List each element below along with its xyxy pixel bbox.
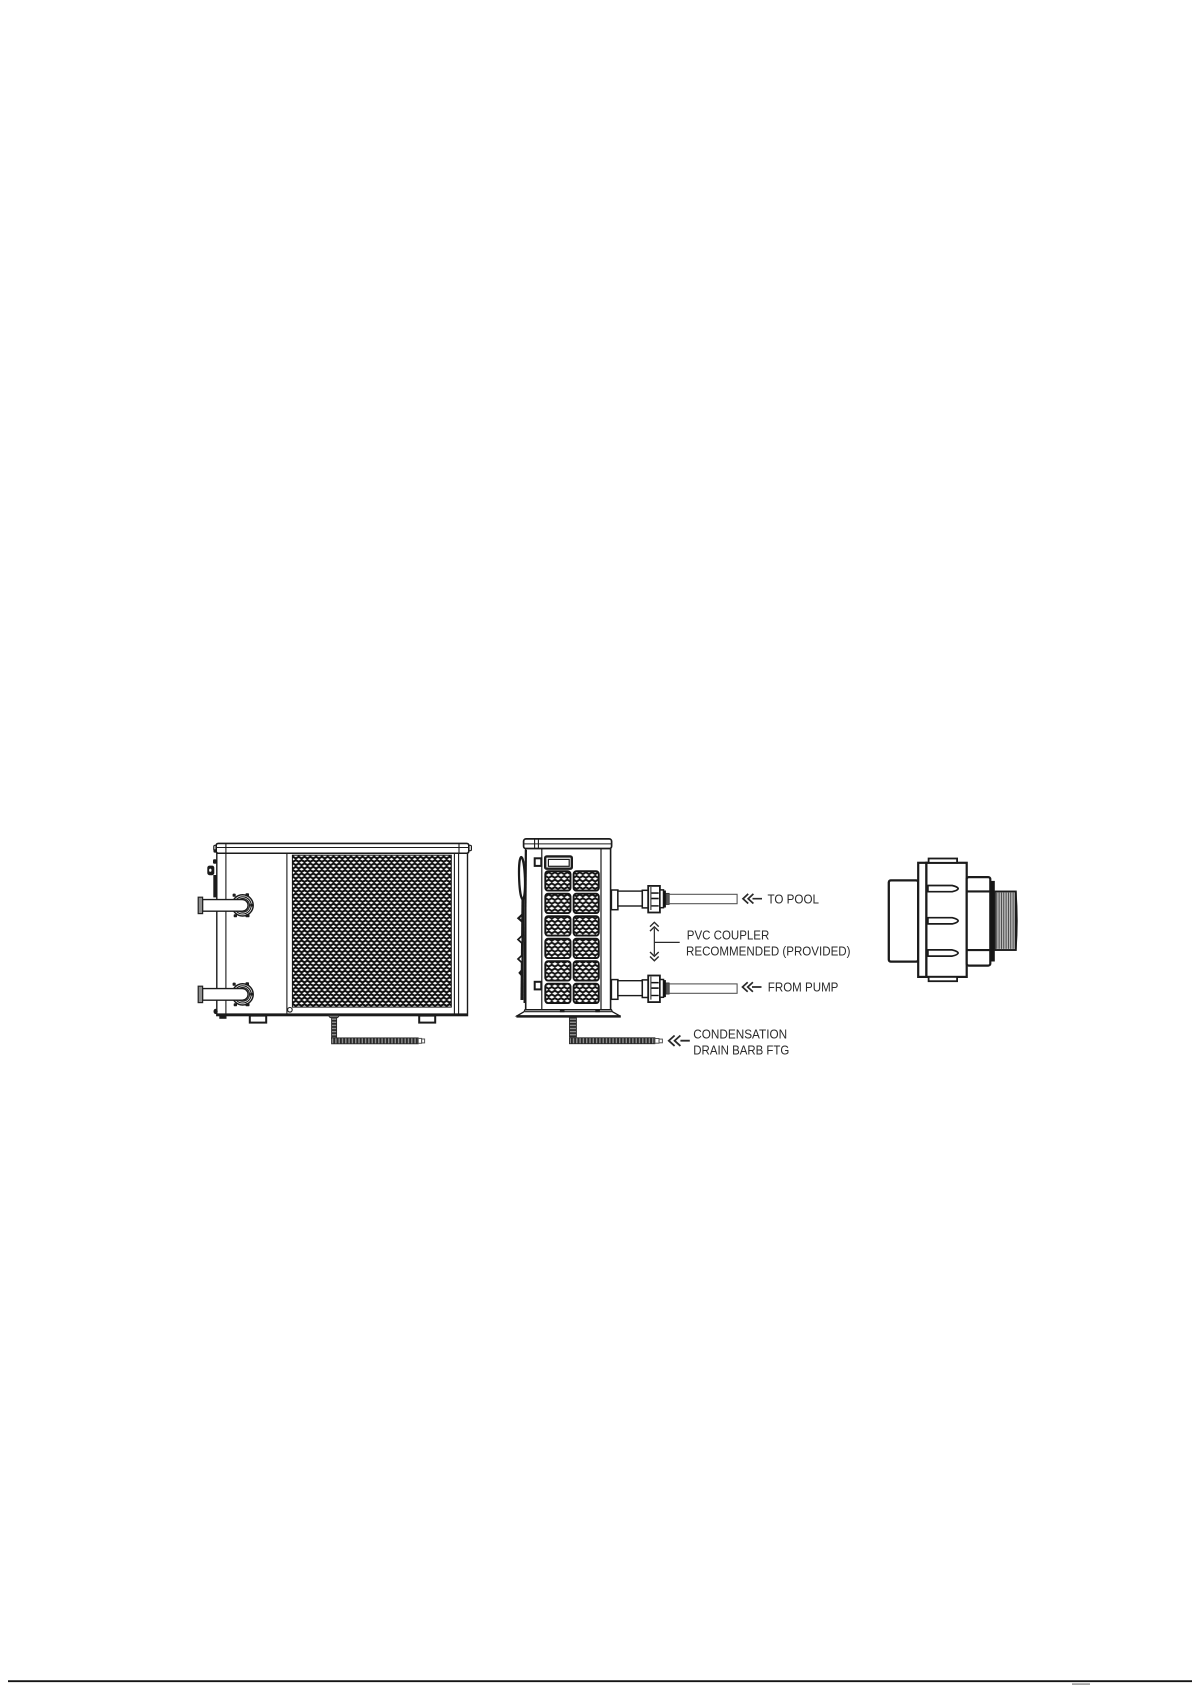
- svg-text:FROM PUMP: FROM PUMP: [768, 980, 839, 995]
- svg-text:PVC COUPLER: PVC COUPLER: [687, 928, 770, 943]
- svg-text:CONDENSATION: CONDENSATION: [693, 1027, 787, 1042]
- svg-text:RECOMMENDED (PROVIDED): RECOMMENDED (PROVIDED): [686, 943, 851, 958]
- svg-text:TO POOL: TO POOL: [768, 891, 820, 906]
- svg-text:DRAIN BARB FTG: DRAIN BARB FTG: [693, 1042, 789, 1057]
